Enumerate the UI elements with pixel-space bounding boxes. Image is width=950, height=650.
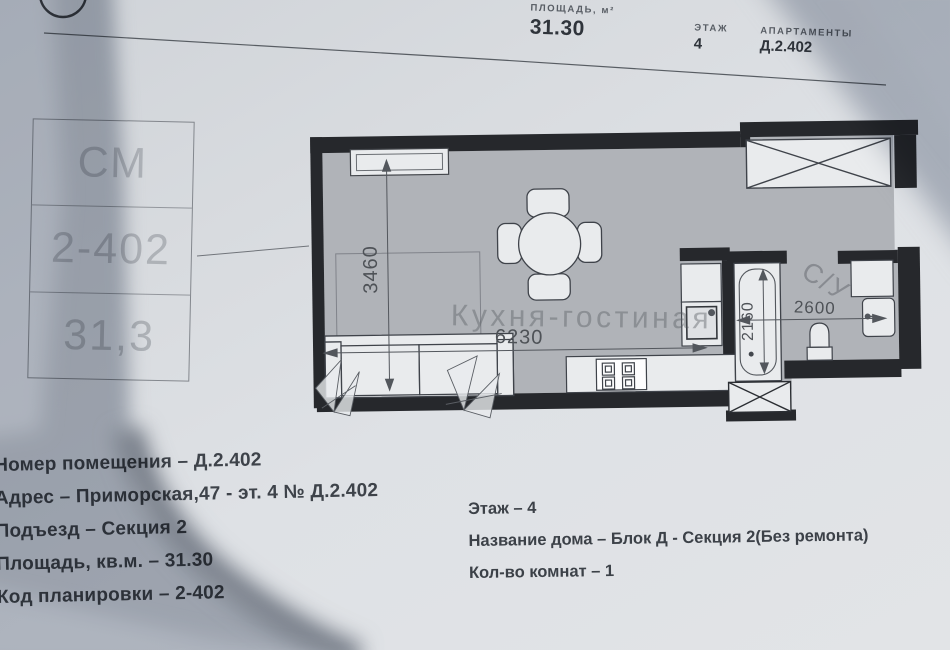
detail-address: Адрес – Приморская,47 - эт. 4 № Д.2.402 [0,480,378,510]
header-area-field: ПЛОЩАДЬ, м² 31.30 [529,3,615,43]
apartment-value: Д.2.402 [760,37,853,57]
toilet-bowl [810,323,829,347]
details-right: Этаж – 4 Название дома – Блок Д - Секция… [468,494,869,596]
detail-area: Площадь, кв.м. – 31.30 [0,546,380,576]
area-value: 31.30 [529,16,614,43]
detail-building-name: Название дома – Блок Д - Секция 2(Без ре… [468,526,868,551]
floor-value: 4 [693,35,727,53]
floor-plan: 3460 6230 2160 2600 Кухня-гостиная С/У [298,112,932,431]
wall-bath-bottom [784,359,901,379]
room-label: Кухня-гостиная [451,299,713,335]
detail-layout-code: Код планировки – 2-402 [0,579,380,609]
detail-entrance: Подъезд – Секция 2 [0,513,379,543]
fridge [681,264,722,303]
stamp-box: СМ 2-402 31,3 [27,118,194,381]
stamp-row-code: СМ [32,119,194,209]
area-label: ПЛОЩАДЬ, м² [530,3,615,17]
logo-arc [40,0,86,17]
dim-text-2160: 2160 [739,301,757,341]
wall-top-entry [740,120,918,137]
stamp-row-layout: 2-402 [30,206,192,296]
floor-label: ЭТАЖ [694,22,728,34]
dining-table [518,212,581,275]
header-apartment-field: АПАРТАМЕНТЫ Д.2.402 [760,25,853,57]
wall-kitchen-top [680,247,730,261]
toilet [807,323,833,360]
stamp-row-area: 31,3 [28,292,190,381]
counter-bottom [566,354,735,392]
washing-machine [851,260,893,297]
details-left: Номер помещения – Д.2.402 Адрес – Примор… [0,447,381,620]
toilet-tank [807,347,832,360]
stove [596,359,646,391]
vent-shaft-crossbox [729,382,791,413]
header-floor-field: ЭТАЖ 4 [693,22,728,53]
wall-bath-right [898,247,922,369]
window [350,148,448,175]
wall-entry-right [894,135,917,188]
detail-room-count: Кол-во комнат – 1 [469,558,869,583]
stamp-leader-line [197,246,309,256]
photo-of-floorplan-sheet: ПЛОЩАДЬ, м² 31.30 ЭТАЖ 4 АПАРТАМЕНТЫ Д.2… [0,0,950,650]
dim-text-3460: 3460 [360,245,383,294]
chair-south [528,274,570,301]
wardrobe-crossbox [746,138,891,188]
